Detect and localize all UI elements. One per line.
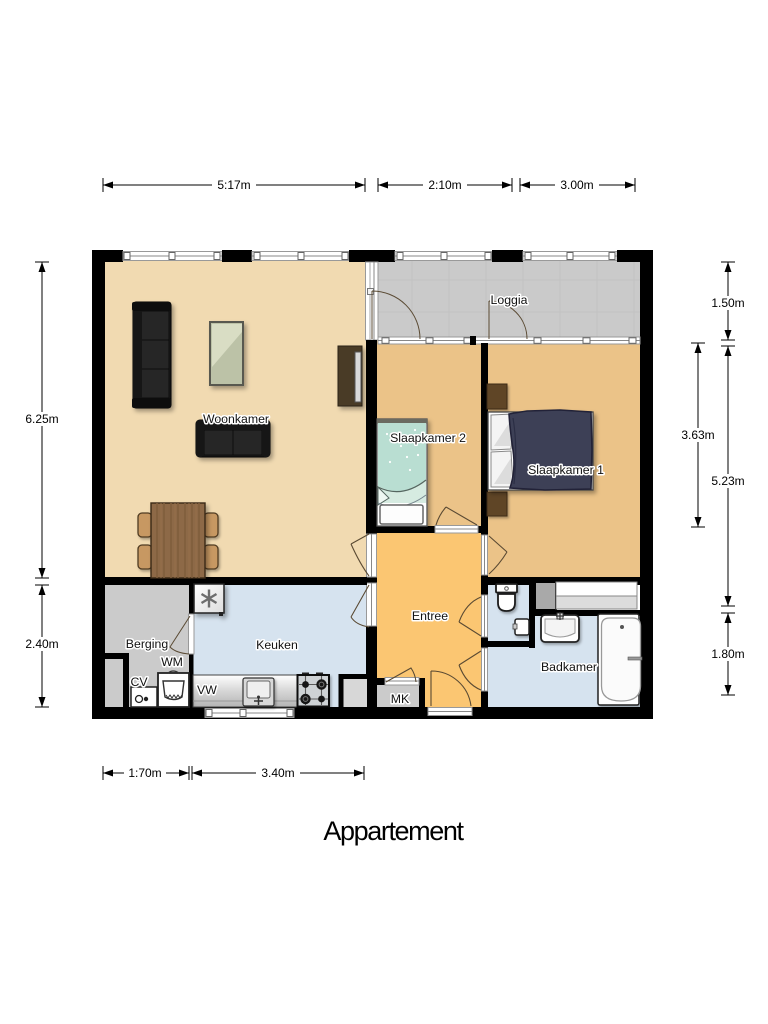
svg-text:5.23m: 5.23m (711, 474, 744, 488)
svg-text:1.80m: 1.80m (711, 647, 744, 661)
svg-text:Slaapkamer 2: Slaapkamer 2 (390, 431, 466, 445)
svg-text:Berging: Berging (126, 637, 169, 651)
svg-text:2.40m: 2.40m (25, 637, 58, 651)
svg-text:Appartement: Appartement (323, 816, 464, 846)
svg-text:6.25m: 6.25m (25, 412, 58, 426)
svg-text:Woonkamer: Woonkamer (203, 412, 269, 426)
svg-text:Loggia: Loggia (491, 293, 528, 307)
svg-text:Entree: Entree (412, 609, 448, 623)
svg-text:CV: CV (130, 675, 148, 689)
svg-text:Badkamer: Badkamer (541, 660, 597, 674)
svg-text:2:10m: 2:10m (428, 178, 461, 192)
svg-text:3.63m: 3.63m (681, 428, 714, 442)
svg-text:5:17m: 5:17m (217, 178, 250, 192)
svg-text:3.40m: 3.40m (261, 766, 294, 780)
svg-text:VW: VW (197, 683, 217, 697)
svg-text:1.50m: 1.50m (711, 296, 744, 310)
svg-text:3.00m: 3.00m (560, 178, 593, 192)
svg-text:Slaapkamer 1: Slaapkamer 1 (528, 463, 604, 477)
svg-text:WM: WM (161, 655, 183, 669)
svg-text:Keuken: Keuken (256, 638, 298, 652)
svg-text:MK: MK (391, 692, 410, 706)
svg-text:1:70m: 1:70m (128, 766, 161, 780)
